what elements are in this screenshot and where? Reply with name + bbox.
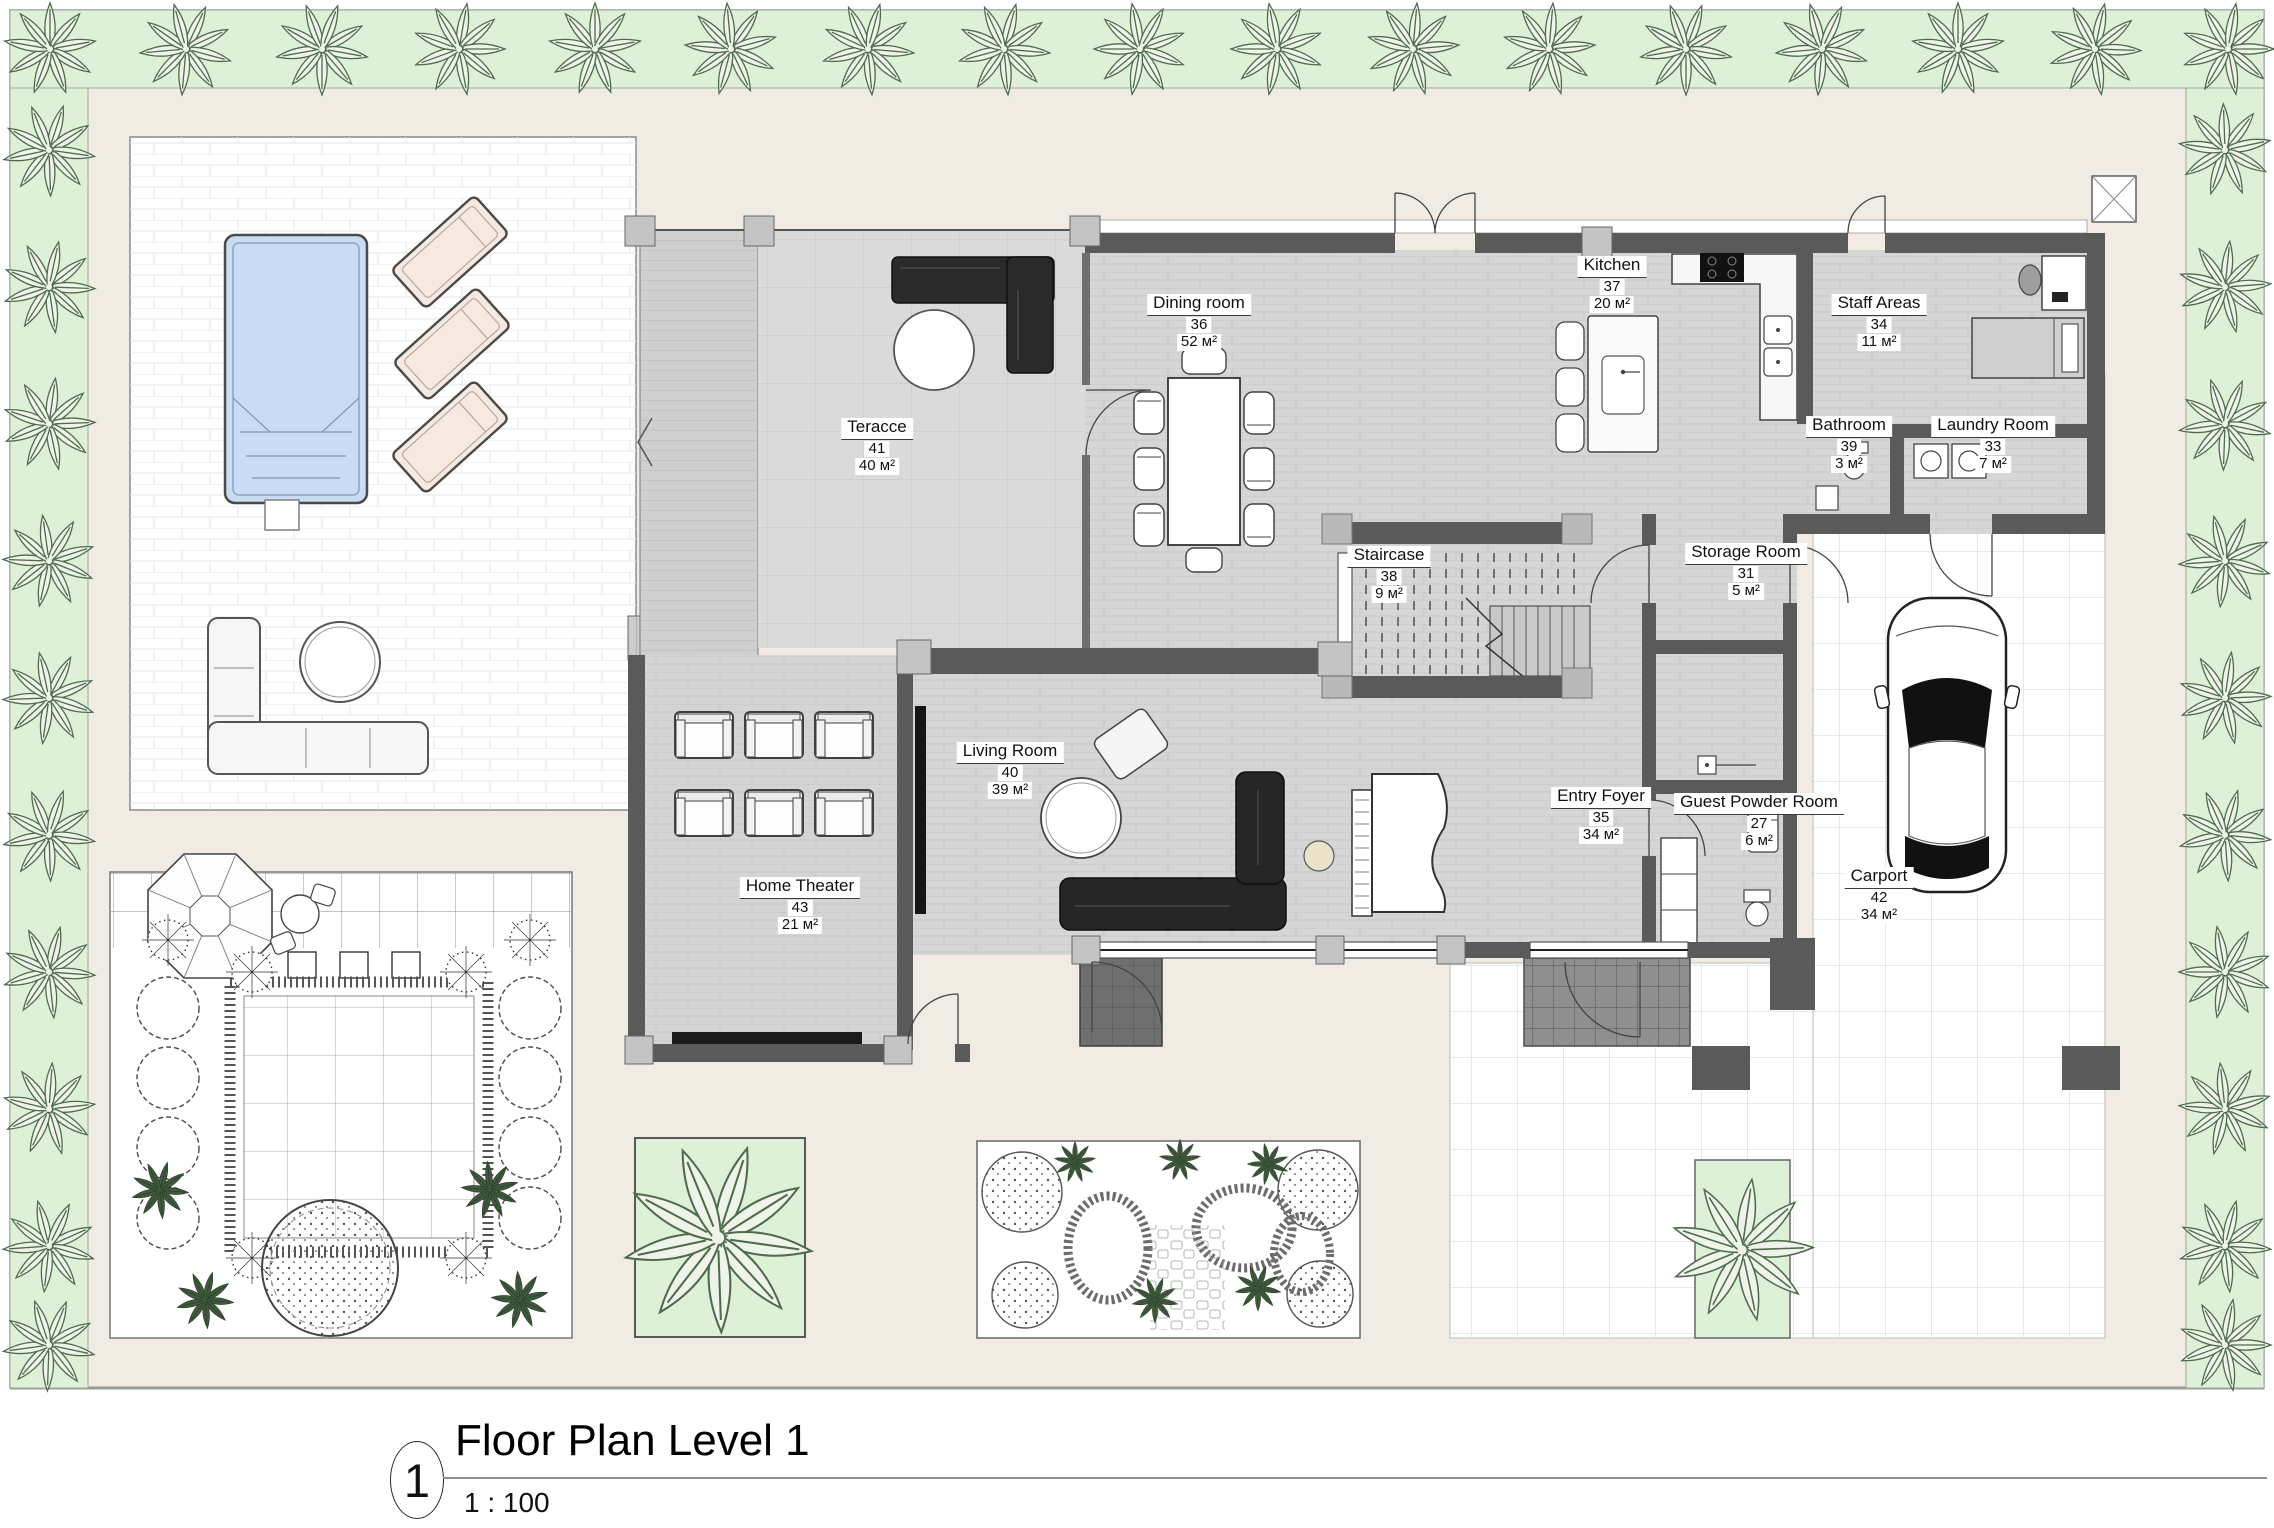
room-label-kitchen: Kitchen3720 м² [1578, 256, 1647, 313]
room-name: Staff Areas [1832, 294, 1927, 316]
desk-chair [2019, 265, 2041, 295]
room-area: 21 м² [778, 917, 822, 934]
car-windshield [1902, 678, 1992, 748]
room-number: 36 [1187, 317, 1212, 334]
projector-screen [672, 1032, 862, 1046]
room-label-living-room: Living Room4039 м² [957, 742, 1064, 799]
swimming-pool [225, 235, 367, 530]
room-area: 34 м² [1857, 907, 1901, 924]
palm-planter-square [599, 1119, 837, 1355]
room-name: Laundry Room [1931, 416, 2055, 438]
room-area: 5 м² [1728, 583, 1764, 600]
gate-pillar [1692, 1046, 1750, 1090]
room-name: Dining room [1147, 294, 1251, 316]
room-name: Entry Foyer [1551, 787, 1651, 809]
room-name: Carport [1845, 867, 1914, 889]
room-number: 35 [1589, 810, 1614, 827]
room-number: 33 [1981, 439, 2006, 456]
room-area: 7 м² [1975, 456, 2011, 473]
room-label-teracce: Teracce4140 м² [841, 418, 913, 475]
outdoor-round-table [300, 622, 380, 702]
room-number: 34 [1867, 317, 1892, 334]
room-label-storage-room: Storage Room315 м² [1685, 543, 1807, 600]
room-label-staircase: Staircase389 м² [1348, 546, 1431, 603]
room-number: 39 [1837, 439, 1862, 456]
room-area: 34 м² [1579, 827, 1623, 844]
room-number: 31 [1734, 566, 1759, 583]
room-area: 52 м² [1177, 334, 1221, 351]
room-area: 39 м² [988, 782, 1032, 799]
pouf [1304, 841, 1334, 871]
room-area: 40 м² [855, 458, 899, 475]
pool-ladder [265, 500, 299, 530]
room-name: Kitchen [1578, 256, 1647, 278]
room-label-guest-powder-room: Guest Powder Room276 м² [1674, 793, 1844, 850]
room-number: 38 [1377, 569, 1402, 586]
room-area: 3 м² [1831, 456, 1867, 473]
room-label-entry-foyer: Entry Foyer3534 м² [1551, 787, 1651, 844]
garden-courtyard [110, 854, 572, 1339]
room-number: 27 [1747, 816, 1772, 833]
room-label-bathroom: Bathroom393 м² [1806, 416, 1892, 473]
ac-unit [2092, 176, 2136, 222]
floor-plan-drawing [0, 0, 2274, 1528]
garden-round-tree [262, 1200, 398, 1336]
room-name: Bathroom [1806, 416, 1892, 438]
room-name: Teracce [841, 418, 913, 440]
room-label-laundry-room: Laundry Room337 м² [1931, 416, 2055, 473]
tv-screen [915, 706, 926, 914]
room-number: 41 [865, 441, 890, 458]
room-number: 43 [788, 900, 813, 917]
room-area: 20 м² [1590, 296, 1634, 313]
room-name: Living Room [957, 742, 1064, 764]
lawn [244, 996, 474, 1238]
staff-bed [1972, 318, 2084, 378]
room-name: Guest Powder Room [1674, 793, 1844, 815]
room-label-staff-areas: Staff Areas3411 м² [1832, 294, 1927, 351]
floor-plan-sheet: Teracce4140 м² Dining room3652 м² Kitche… [0, 0, 2274, 1528]
room-area: 11 м² [1857, 334, 1900, 351]
garden-bed [977, 1133, 1360, 1338]
terrace-round-table [894, 310, 974, 390]
room-number: 42 [1867, 890, 1892, 907]
room-label-home-theater: Home Theater4321 м² [740, 877, 860, 934]
room-name: Home Theater [740, 877, 860, 899]
room-label-dining-room: Dining room3652 м² [1147, 294, 1251, 351]
room-area: 9 м² [1371, 586, 1407, 603]
terrace-deck [640, 230, 758, 660]
room-label-carport: Carport4234 м² [1845, 867, 1914, 924]
pool-patio [130, 137, 636, 810]
room-number: 40 [998, 765, 1023, 782]
grand-piano [1352, 774, 1447, 916]
room-name: Storage Room [1685, 543, 1807, 565]
kitchen-island [1556, 316, 1658, 452]
room-area: 6 м² [1741, 833, 1777, 850]
room-name: Staircase [1348, 546, 1431, 568]
bar-stool [1556, 322, 1584, 360]
gate-pillar [2062, 1046, 2120, 1090]
room-number: 37 [1600, 279, 1625, 296]
sink-icon [1816, 486, 1838, 510]
car [1874, 598, 2020, 892]
stove-icon [1700, 252, 1744, 282]
